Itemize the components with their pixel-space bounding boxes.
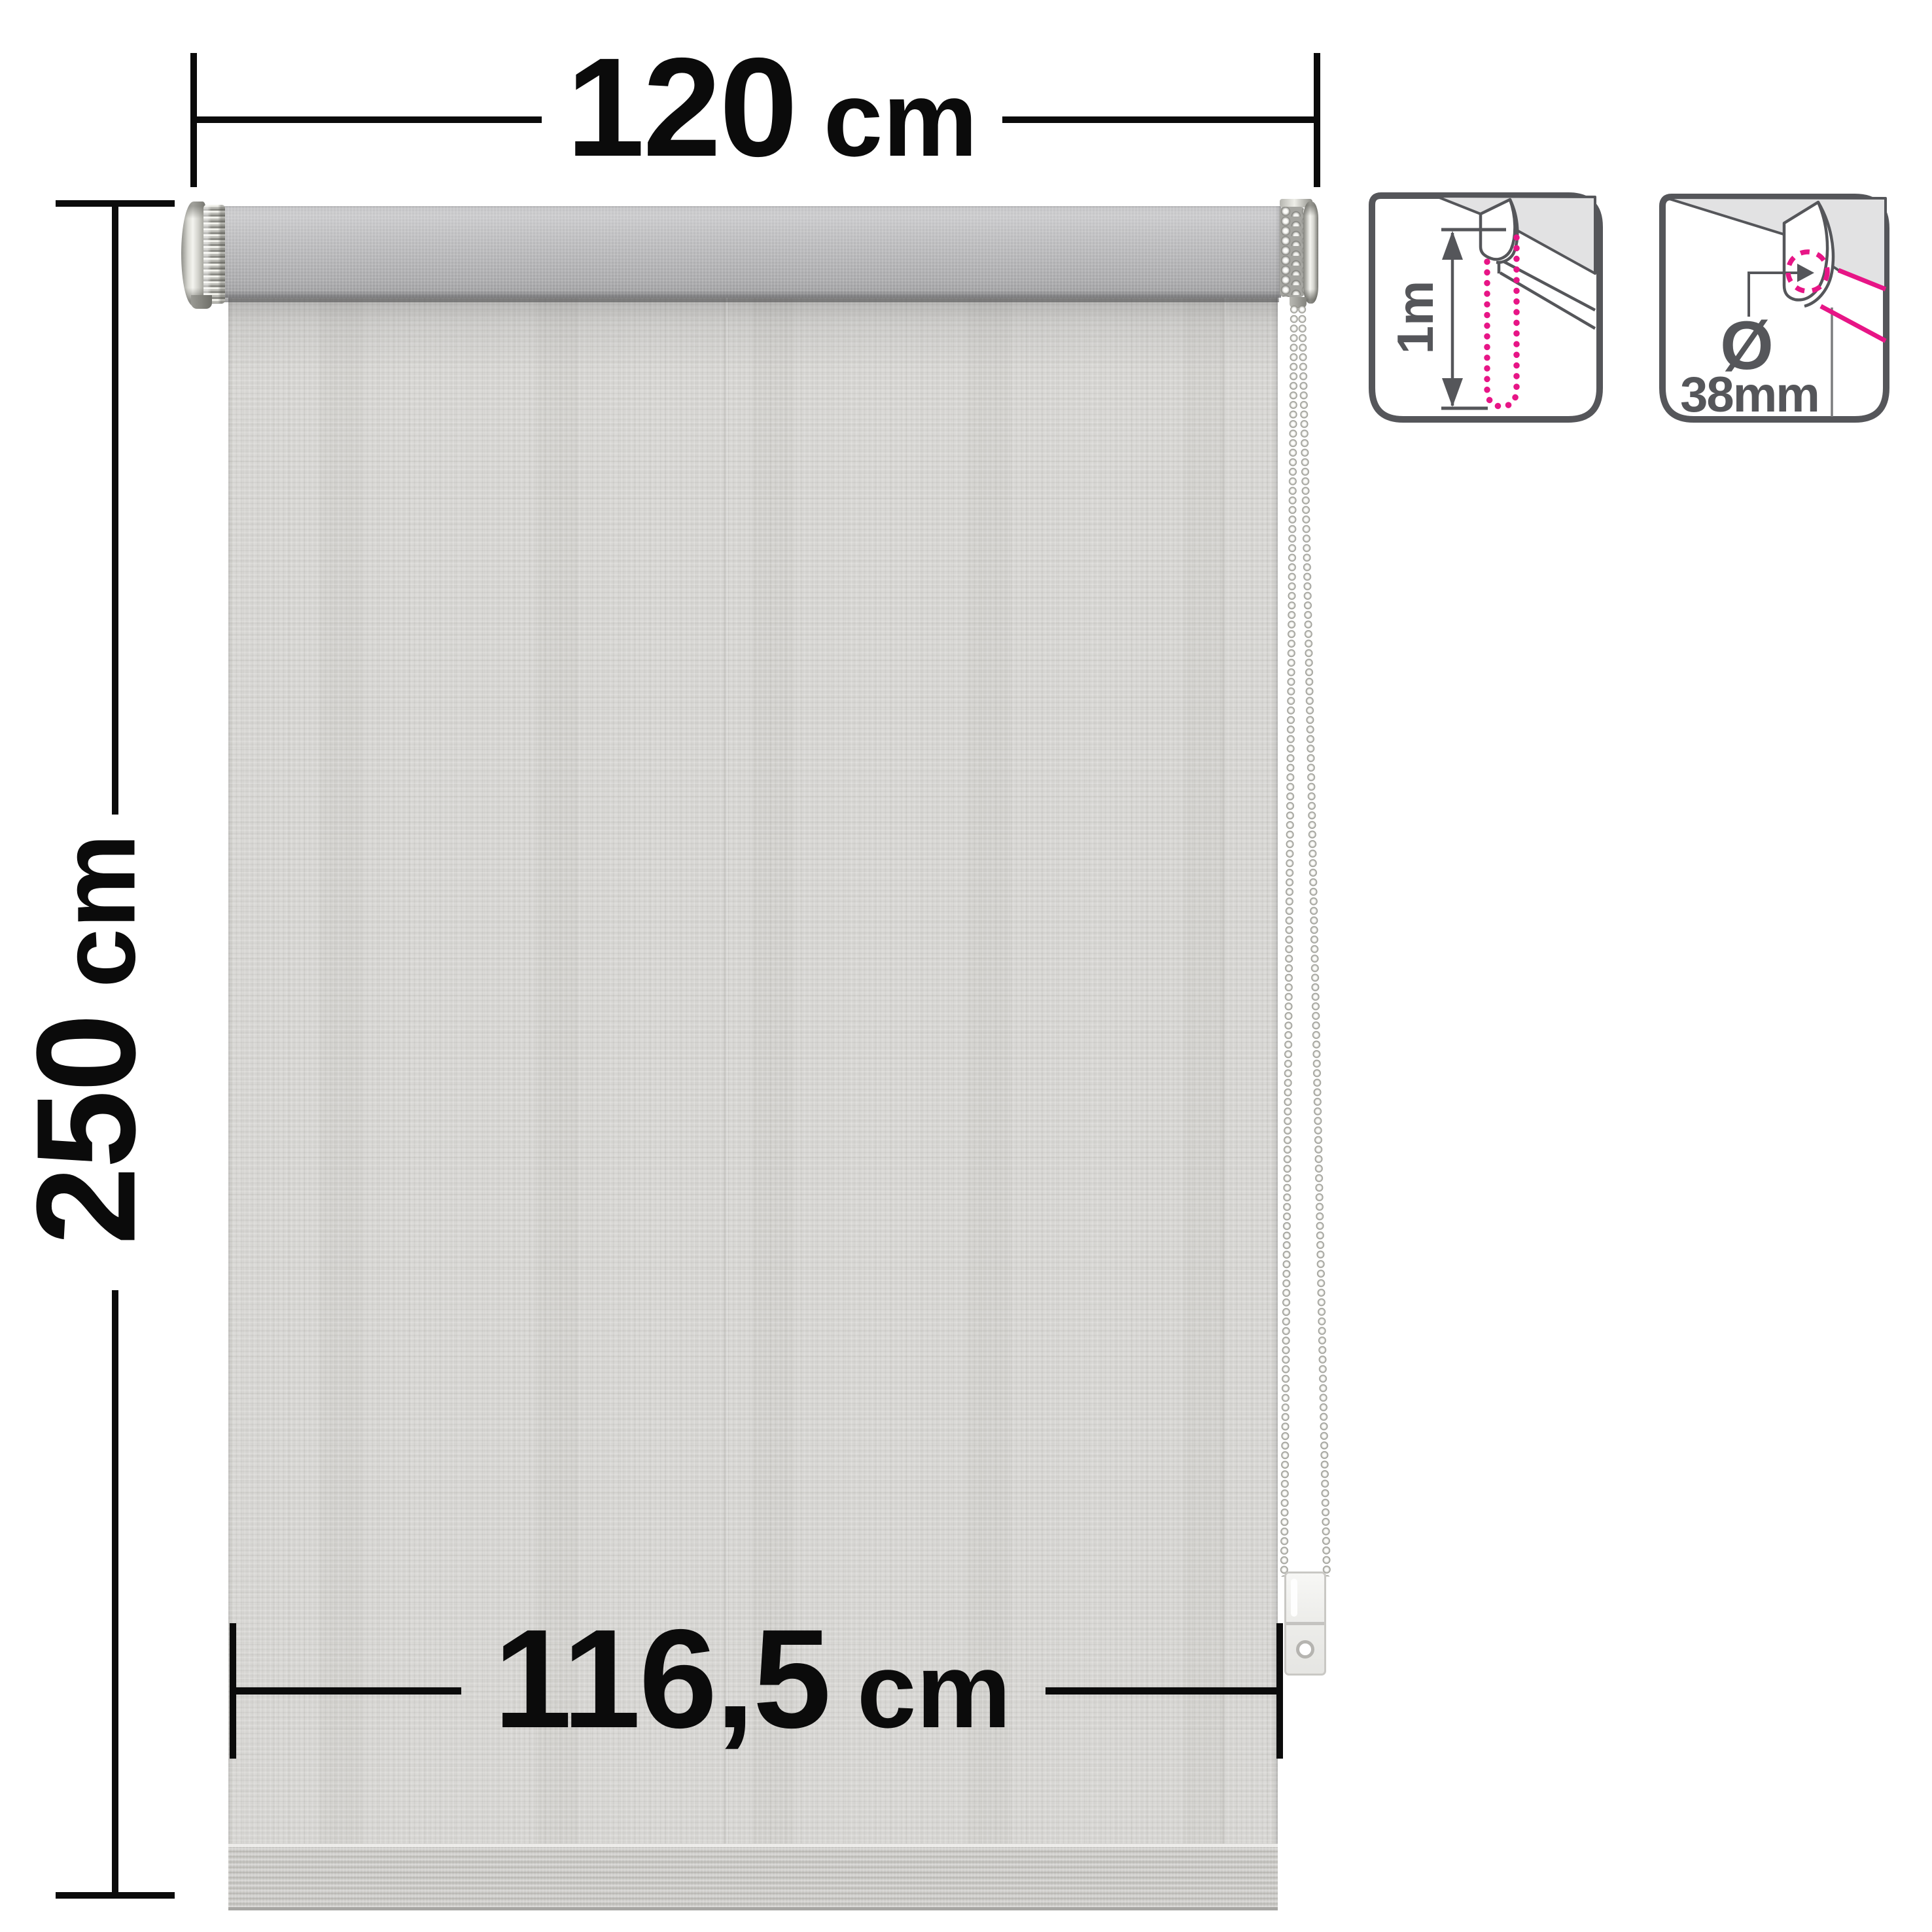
top-width-unit: cm [824, 65, 978, 172]
bottom-dim-line-left [233, 1687, 461, 1695]
fabric-width-label: 116,5 cm [458, 1608, 1047, 1749]
fabric-seam-right [1223, 298, 1226, 1904]
connector-highlight [1291, 1579, 1297, 1617]
top-dim-tick-right [1314, 53, 1320, 187]
left-dim-tick-bottom [56, 1892, 175, 1899]
fabric-width-value: 116,5 [494, 1608, 830, 1749]
left-dim-line-bottom [112, 1290, 118, 1895]
top-dim-tick-left [190, 53, 197, 187]
tube-diameter-icon: Ø 38mm [1659, 194, 1889, 423]
top-dim-line-right [1002, 116, 1314, 123]
chain-mechanism-side-disc [1303, 202, 1318, 304]
bottom-dim-line-right [1045, 1687, 1280, 1695]
connector-hole [1296, 1640, 1314, 1659]
left-end-bracket-hook [191, 295, 212, 309]
left-dim-line-top [112, 203, 118, 815]
bottom-dim-tick-right [1276, 1623, 1283, 1759]
bottom-dim-tick-left [230, 1623, 236, 1759]
chain-connector-clip [1284, 1572, 1326, 1676]
left-height-unit: cm [44, 834, 151, 988]
left-height-label: 250 cm [16, 745, 156, 1334]
chain-mechanism-bead-wheel [1280, 207, 1305, 297]
bead-chain-strand-left [1280, 305, 1298, 1577]
left-dim-tick-top [56, 200, 175, 207]
left-end-gear-ring [203, 205, 225, 304]
blind-roller-tube [218, 206, 1281, 298]
roller-blind-diagram: 120 cm 250 cm [0, 0, 1932, 1932]
left-height-value: 250 [16, 1015, 156, 1245]
diameter-value: 38mm [1680, 367, 1819, 423]
top-width-value: 120 [567, 37, 796, 177]
blind-bottom-hem-bar [228, 1844, 1278, 1910]
bead-chain-strand-right [1298, 305, 1331, 1577]
fabric-top-shade [228, 298, 1278, 370]
top-width-label: 120 cm [543, 37, 1001, 177]
roller-tube-shadow [218, 290, 1279, 302]
chain-length-label: 1m [1386, 281, 1444, 355]
top-dim-line-left [194, 116, 542, 123]
connector-ridge [1286, 1622, 1324, 1625]
chain-length-icon: 1m [1369, 192, 1603, 423]
fabric-width-unit: cm [857, 1637, 1011, 1744]
left-end-cap [181, 202, 205, 306]
